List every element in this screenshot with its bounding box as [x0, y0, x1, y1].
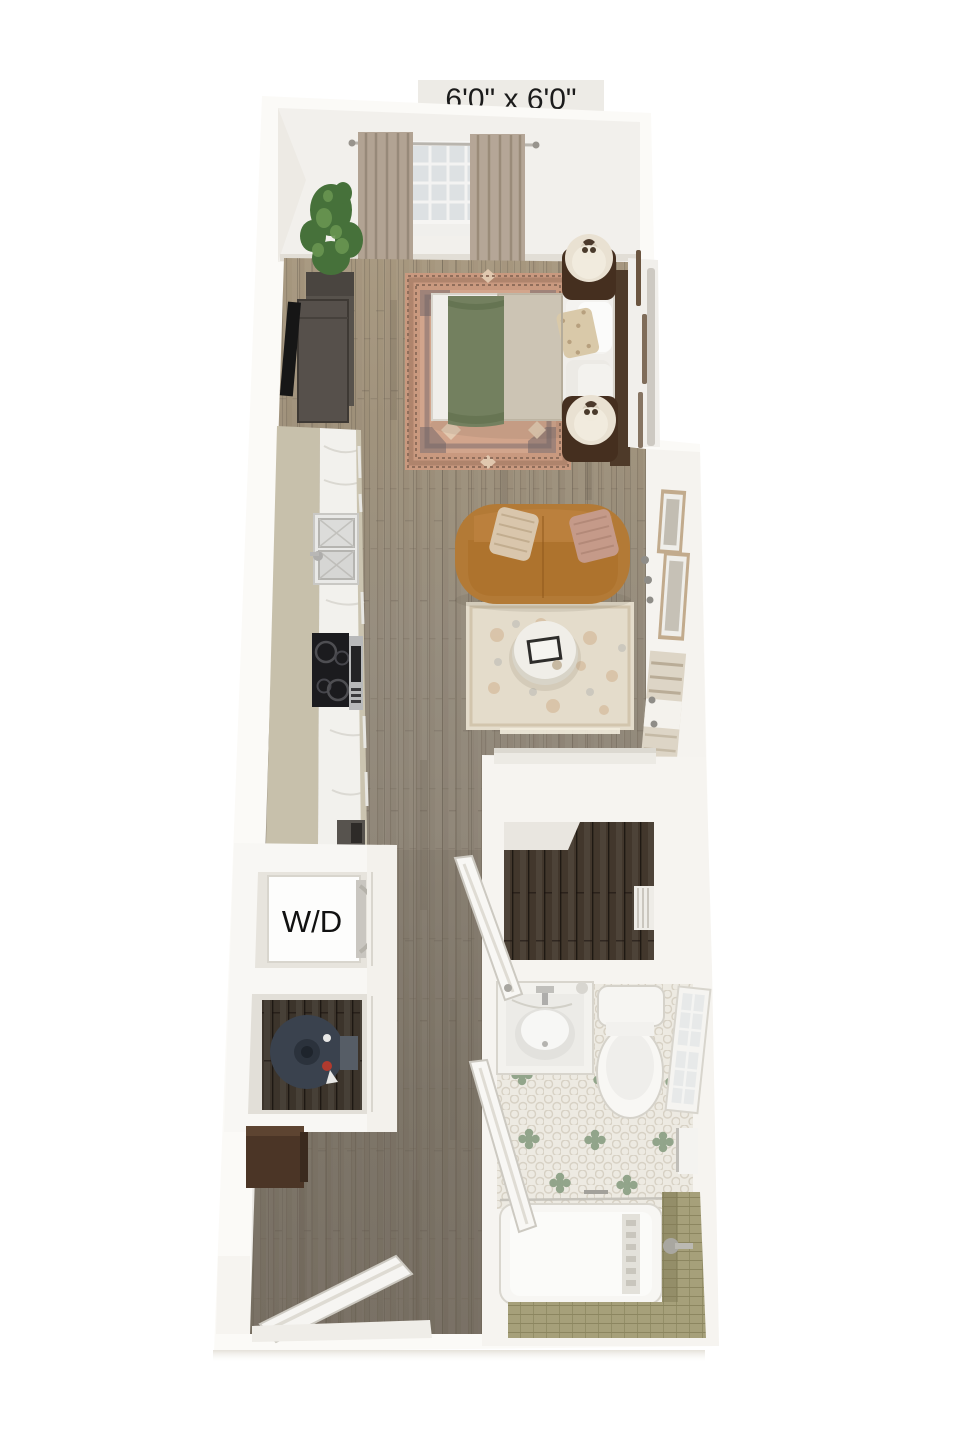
- svg-text:W/D: W/D: [282, 904, 342, 939]
